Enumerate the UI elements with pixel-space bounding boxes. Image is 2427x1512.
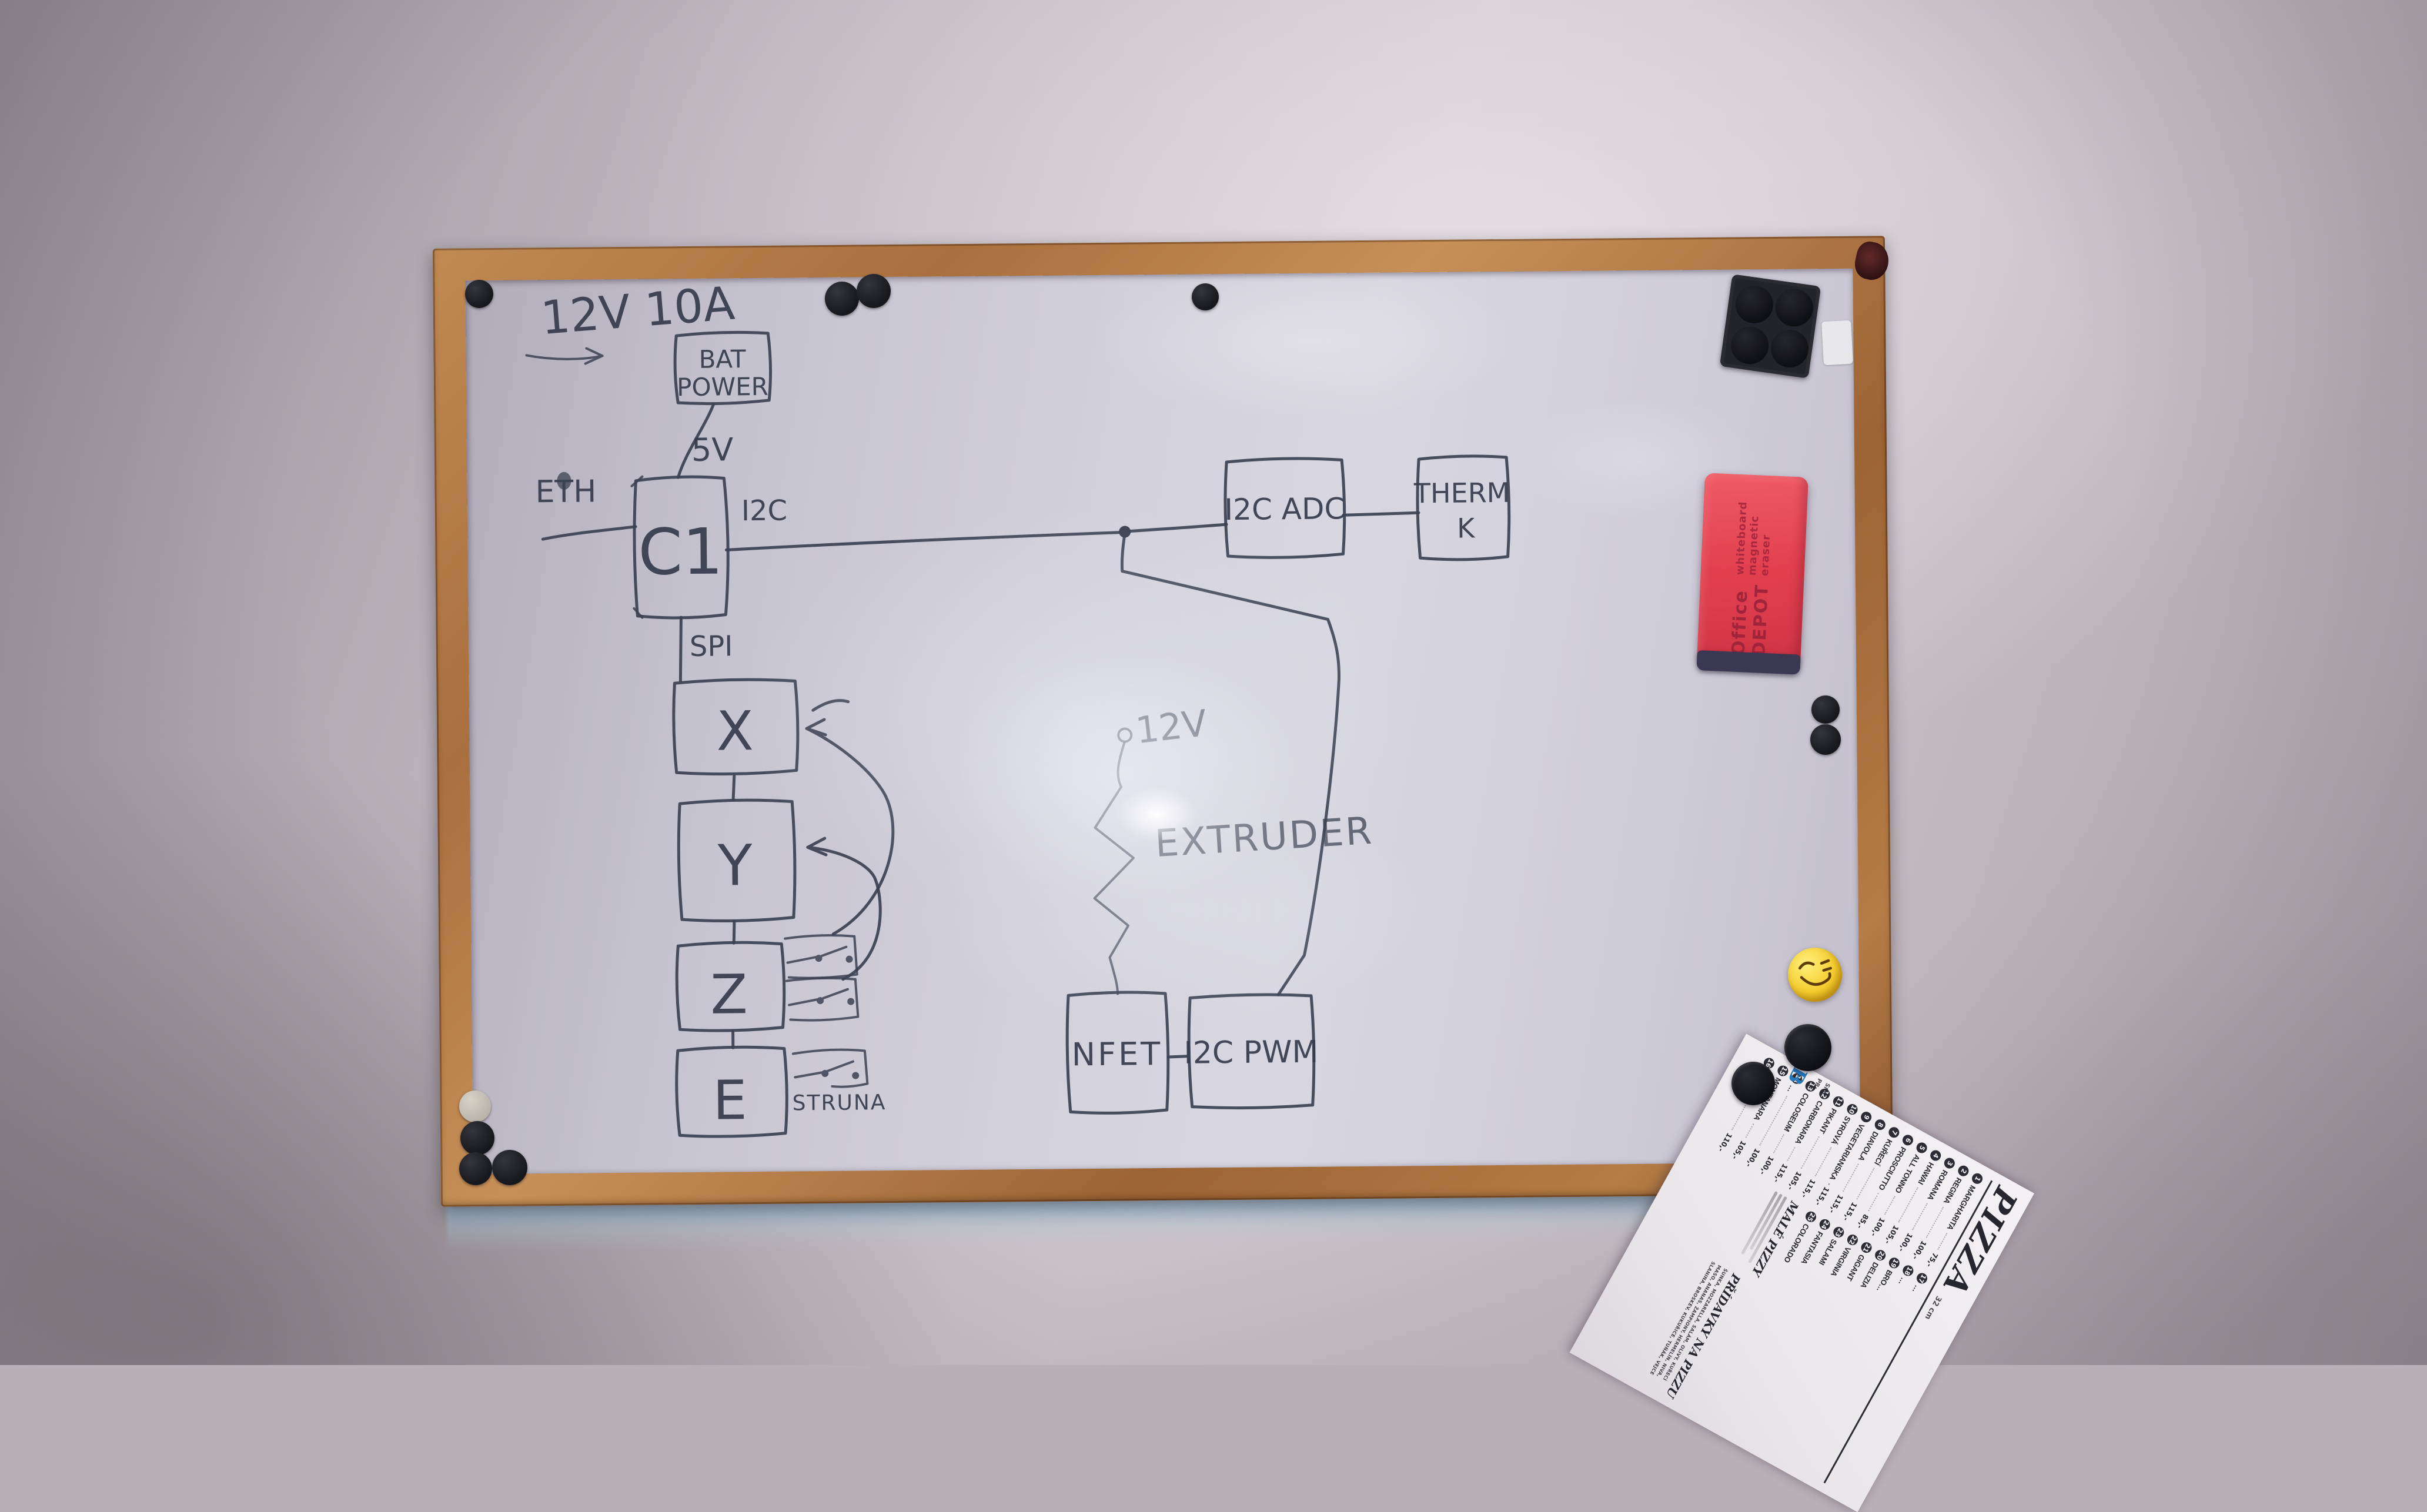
svg-text:NFET: NFET <box>1071 1035 1162 1073</box>
svg-text:C1: C1 <box>638 516 723 590</box>
tape-piece <box>1821 320 1853 366</box>
eraser-brand-text: Office DEPOT <box>1729 580 1773 657</box>
tray-magnet[interactable] <box>1769 327 1811 370</box>
label-i2c: I2C <box>741 494 788 528</box>
node-nfet: NFET <box>1067 992 1168 1113</box>
magnet-dot[interactable] <box>825 282 859 316</box>
label-spi: SPI <box>690 630 733 663</box>
z-endstop-switch-1 <box>785 935 857 978</box>
filament-switch <box>793 1049 868 1087</box>
node-x: X <box>673 679 798 774</box>
edge-12v-nfet <box>1093 742 1135 994</box>
magnet-dot[interactable] <box>1192 283 1219 310</box>
svg-text:POWER: POWER <box>677 372 768 402</box>
edge-eth <box>543 527 636 539</box>
tray-magnet[interactable] <box>1733 283 1776 326</box>
magnet-dot[interactable] <box>1731 1062 1775 1105</box>
label-12v: 12V <box>1134 701 1209 752</box>
magnet-dot[interactable] <box>1784 1024 1831 1071</box>
node-i2c-pwm: I2C PWM <box>1184 994 1319 1108</box>
eraser-sub-text: whiteboard magnetic eraser <box>1734 480 1775 576</box>
svg-text:I2C ADC: I2C ADC <box>1224 491 1345 527</box>
smiley-face-icon <box>1788 948 1842 1002</box>
svg-text:Y: Y <box>717 832 753 899</box>
right-arrow-icon <box>526 348 602 364</box>
magnet-dot[interactable] <box>459 1152 492 1185</box>
magnet-dot[interactable] <box>492 1150 527 1185</box>
magnet-dot[interactable] <box>1810 724 1841 755</box>
edge-junction-pwm <box>1122 535 1342 996</box>
node-bat-power: BAT POWER <box>675 332 771 404</box>
whiteboard-frame: 12V 10A BAT POWER 5V C1 ETH I <box>433 236 1893 1206</box>
node-z: Z <box>677 942 785 1031</box>
edge-spi <box>680 617 681 681</box>
label-struna: STRUNA <box>792 1090 886 1115</box>
edge-adc-therm <box>1343 513 1419 515</box>
svg-text:THERM: THERM <box>1413 477 1510 509</box>
smiley-magnet[interactable] <box>1788 948 1842 1002</box>
svg-text:BAT: BAT <box>698 344 746 374</box>
svg-text:E: E <box>713 1069 747 1132</box>
svg-text:I2C PWM: I2C PWM <box>1184 1035 1318 1071</box>
magnet-dot[interactable] <box>857 274 891 308</box>
whiteboard-eraser[interactable]: Office DEPOT whiteboard magnetic eraser <box>1697 473 1808 666</box>
node-therm-k: THERM K <box>1413 456 1510 560</box>
svg-text:X: X <box>716 700 754 763</box>
magnet-dot[interactable] <box>465 280 493 308</box>
magnet-tray <box>1720 274 1821 379</box>
svg-text:Z: Z <box>710 963 748 1026</box>
z-endstop-switch-2 <box>787 978 858 1020</box>
magnet-dot[interactable] <box>1811 695 1840 724</box>
whiteboard-surface: 12V 10A BAT POWER 5V C1 ETH I <box>465 269 1860 1175</box>
edge-y-z <box>734 921 734 943</box>
menu-size-note: 32 cm <box>1923 1294 1943 1322</box>
label-5v: 5V <box>691 431 734 469</box>
edge-x-y <box>733 776 734 799</box>
node-y: Y <box>678 800 795 921</box>
edge-i2c-adc <box>1131 524 1226 531</box>
node-e: E <box>676 1047 787 1137</box>
edge-i2c <box>726 533 1121 550</box>
svg-text:K: K <box>1457 512 1476 544</box>
power-label: 12V 10A <box>539 277 737 346</box>
magnet-dot-white[interactable] <box>459 1090 491 1122</box>
hand-drawn-diagram: 12V 10A BAT POWER 5V C1 ETH I <box>465 269 1860 1175</box>
12v-terminal-circle <box>1118 728 1131 741</box>
edge-nfet-pwm <box>1168 1056 1189 1057</box>
label-extruder: EXTRUDER <box>1154 809 1375 867</box>
node-i2c-adc: I2C ADC <box>1224 458 1345 558</box>
tray-magnet[interactable] <box>1773 286 1816 329</box>
node-c1: C1 <box>631 476 728 618</box>
magnet-dot[interactable] <box>460 1121 494 1155</box>
tray-magnet[interactable] <box>1729 324 1771 366</box>
